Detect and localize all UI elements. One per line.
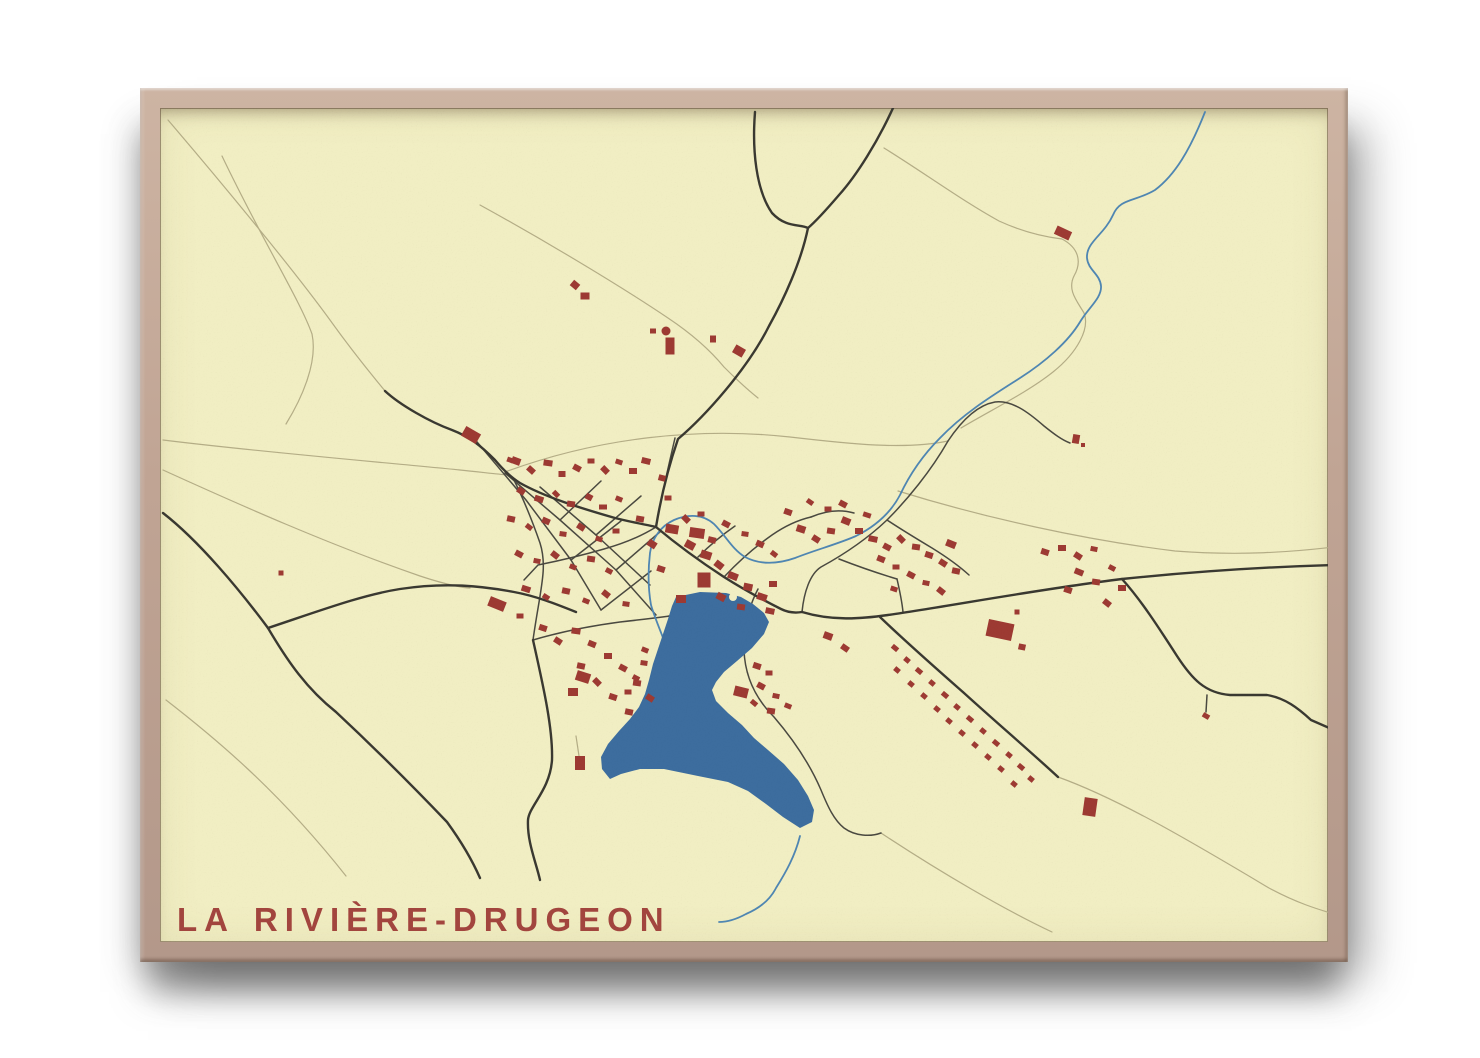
paper-grain-texture bbox=[160, 108, 1328, 942]
product-photo-scene: LA RIVIÈRE-DRUGEON bbox=[0, 0, 1480, 1058]
map-poster: LA RIVIÈRE-DRUGEON bbox=[160, 108, 1328, 942]
town-map-svg bbox=[160, 108, 1328, 942]
poster-title: LA RIVIÈRE-DRUGEON bbox=[177, 901, 671, 939]
wooden-picture-frame: LA RIVIÈRE-DRUGEON bbox=[140, 88, 1348, 962]
